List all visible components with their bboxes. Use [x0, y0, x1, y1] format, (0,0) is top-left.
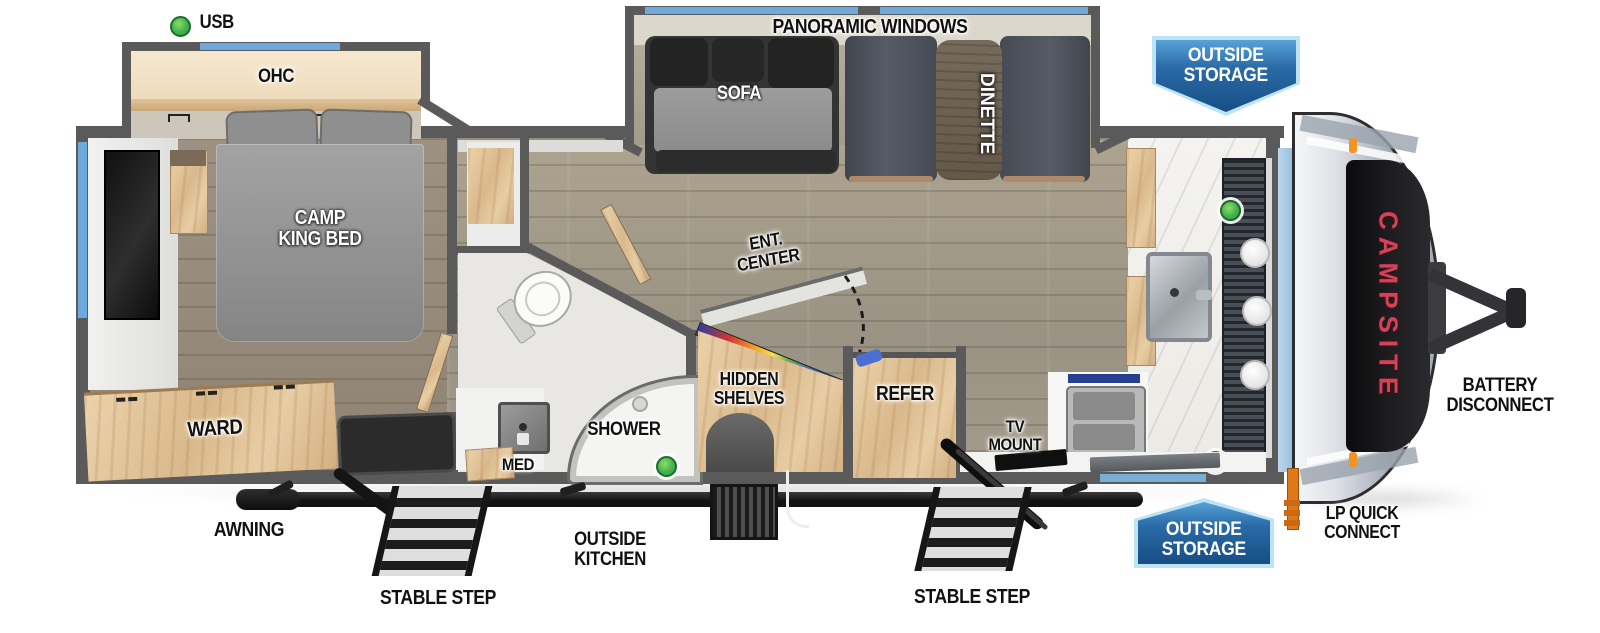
wall-refer-left: [843, 346, 853, 472]
dinette-bench-trim: [1003, 176, 1085, 182]
bottom-window-strip: [1100, 474, 1206, 482]
panoramic-window-right: [880, 7, 1088, 14]
sofa-back-cushion: [712, 38, 764, 82]
nightstand-top: [170, 150, 206, 166]
bar-stool: [1240, 238, 1270, 268]
wardrobe-handle: [274, 385, 283, 389]
tv-mount-label: TV MOUNT: [982, 418, 1047, 454]
sink-drain-icon: [519, 423, 527, 431]
marker-light-icon: [1349, 138, 1357, 153]
lp-quick-connect-label: LP QUICK CONNECT: [1313, 504, 1412, 542]
shower-label: SHOWER: [578, 420, 670, 440]
bed-slideout-wall-right: [421, 42, 430, 102]
wardrobe-handle: [116, 397, 125, 401]
front-cap-panel: CAMPSITE: [1346, 160, 1430, 452]
sink-faucet-icon: [517, 433, 529, 445]
wall-bedroom-divider-upper: [447, 138, 457, 334]
lp-fitting: [1284, 520, 1300, 526]
brand-badge: CAMPSITE: [1373, 211, 1404, 401]
wall-closet: [520, 138, 529, 250]
wardrobe-handle: [208, 391, 217, 395]
stable-step-ladder-left: [372, 486, 493, 576]
refrigerator: [853, 352, 956, 478]
battery-disconnect-label: BATTERY DISCONNECT: [1440, 376, 1560, 416]
oven-door-bottom: [1073, 424, 1135, 450]
bedroom-tv-panel: [104, 150, 160, 320]
marker-light-icon: [1349, 452, 1357, 467]
banner-body: OUTSIDE STORAGE: [1156, 40, 1296, 112]
outside-kitchen-griddle: [710, 484, 778, 540]
usb-indicator-icon: [170, 16, 191, 37]
usb-indicator-icon: [1220, 200, 1241, 221]
dinette-bench-trim: [849, 176, 933, 182]
bar-stool: [1242, 296, 1272, 326]
griddle-cable: [786, 470, 809, 528]
panoramic-windows-label: PANORAMIC WINDOWS: [764, 17, 975, 38]
bar-stool: [1240, 360, 1270, 390]
sofa-front: [656, 150, 836, 172]
bedroom-window: [200, 43, 340, 50]
range-knob-panel: [1068, 374, 1140, 383]
dinette-label: DINETTE: [942, 58, 996, 170]
wall-top-mid: [421, 126, 634, 138]
med-label: MED: [492, 456, 545, 474]
refer-label: REFER: [864, 384, 947, 405]
panoramic-window-left: [645, 7, 858, 14]
entry-mat: [337, 412, 457, 476]
wall-top-right: [1091, 126, 1284, 138]
usb-label: USB: [200, 13, 253, 33]
closet-shelf: [468, 148, 514, 224]
dinette-bench-left: [845, 36, 937, 182]
outside-kitchen-label: OUTSIDE KITCHEN: [555, 530, 664, 570]
rv-floorplan: OHC USB PANORAMIC WINDOWS SOFA DINETTE: [0, 0, 1600, 633]
dinette-bench-right: [1000, 36, 1090, 182]
outside-storage-banner-top: OUTSIDE STORAGE: [1152, 36, 1300, 116]
hitch-coupler: [1506, 288, 1526, 328]
door-swing-arc: [775, 270, 870, 360]
front-window-strip: [1278, 148, 1292, 472]
sofa-label: SOFA: [699, 84, 778, 104]
kitchen-cabinet-upper: [1126, 148, 1156, 248]
ohc-label: OHC: [236, 67, 315, 87]
sofa-back-cushion: [768, 38, 834, 88]
wardrobe-handle: [128, 397, 137, 401]
awning-label: AWNING: [201, 520, 298, 541]
sofa-back-cushion: [650, 38, 708, 86]
banner-body: OUTSIDE STORAGE: [1138, 502, 1270, 564]
outside-storage-bottom-label: OUTSIDE STORAGE: [1162, 520, 1246, 560]
ohc-bracket: [168, 114, 190, 122]
oven: [1066, 386, 1146, 458]
oven-door-top: [1073, 392, 1135, 420]
hidden-shelves-arch: [706, 413, 774, 472]
stable-step-right-label: STABLE STEP: [910, 587, 1033, 608]
lp-fitting: [1284, 510, 1300, 516]
usb-indicator-icon: [656, 456, 677, 477]
shower-drain-icon: [632, 396, 648, 412]
rear-window: [78, 142, 87, 318]
kitchen-faucet-icon: [1196, 290, 1212, 300]
sink-drain-icon: [1170, 288, 1179, 297]
hidden-shelves-label: HIDDEN SHELVES: [701, 370, 798, 408]
stable-step-ladder-right: [914, 487, 1031, 571]
kitchen-sink: [1146, 252, 1212, 342]
camp-king-bed-label: CAMP KING BED: [250, 208, 391, 250]
wardrobe-handle: [196, 391, 205, 395]
outside-storage-banner-bottom: OUTSIDE STORAGE: [1134, 498, 1274, 568]
wardrobe-handle: [286, 385, 295, 389]
lp-fitting: [1284, 500, 1300, 506]
outside-storage-top-label: OUTSIDE STORAGE: [1184, 46, 1268, 86]
stable-step-left-label: STABLE STEP: [376, 588, 499, 609]
